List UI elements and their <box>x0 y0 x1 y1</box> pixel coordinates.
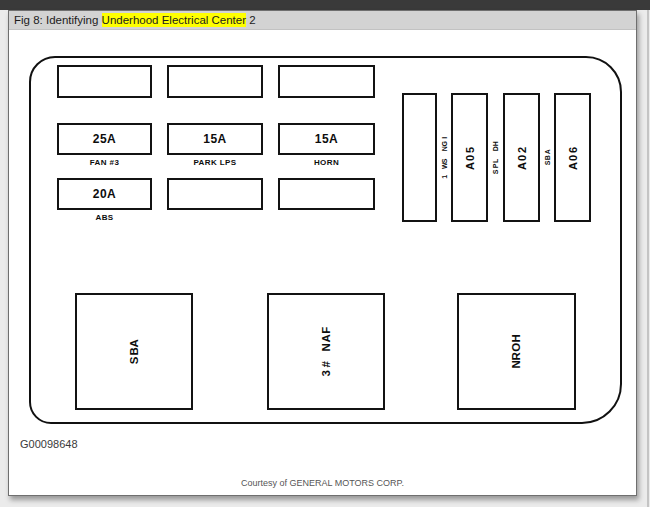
figure-title-prefix: Fig 8: Identifying <box>14 14 102 26</box>
maxifuse-50a: 50A <box>451 93 488 222</box>
window-right-edge <box>647 10 649 507</box>
blank-box <box>278 178 375 210</box>
relay-fan3: FAN #3 <box>267 293 385 410</box>
maxifuse-20a: 20A <box>503 93 540 222</box>
fuse-fan3-label: FAN #3 <box>57 158 152 167</box>
fuse-park-lps: 15A <box>167 123 263 155</box>
fuse-abs-label: ABS <box>57 213 152 222</box>
maxifuse-abs-label: ABS <box>541 93 554 222</box>
maxifuse-60a: 60A <box>554 93 591 222</box>
maxifuse-ign-sw <box>402 93 437 222</box>
figure-title-bar: Fig 8: Identifying Underhood Electrical … <box>9 11 636 30</box>
blank-box <box>167 65 263 98</box>
blank-box <box>167 178 263 210</box>
blank-box <box>278 65 375 98</box>
maxifuse-hd-lps-label: HD LPS <box>489 93 502 222</box>
relay-abs: ABS <box>75 293 193 410</box>
window-top-strip <box>0 0 650 10</box>
fuse-park-lps-label: PARK LPS <box>167 158 263 167</box>
figure-id: G00098648 <box>20 438 78 450</box>
figure-title-suffix: 2 <box>246 14 256 26</box>
courtesy-note: Courtesy of GENERAL MOTORS CORP. <box>8 478 637 488</box>
maxifuse-ign-sw-label: IGN SW 1 <box>438 93 451 222</box>
fuse-fan3: 25A <box>57 123 152 155</box>
blank-box <box>57 65 152 98</box>
relay-horn: HORN <box>457 293 576 410</box>
fuse-horn-label: HORN <box>278 158 375 167</box>
fuse-horn: 15A <box>278 123 375 155</box>
fuse-abs: 20A <box>57 178 152 210</box>
figure-title-highlight: Underhood Electrical Center <box>102 13 246 27</box>
